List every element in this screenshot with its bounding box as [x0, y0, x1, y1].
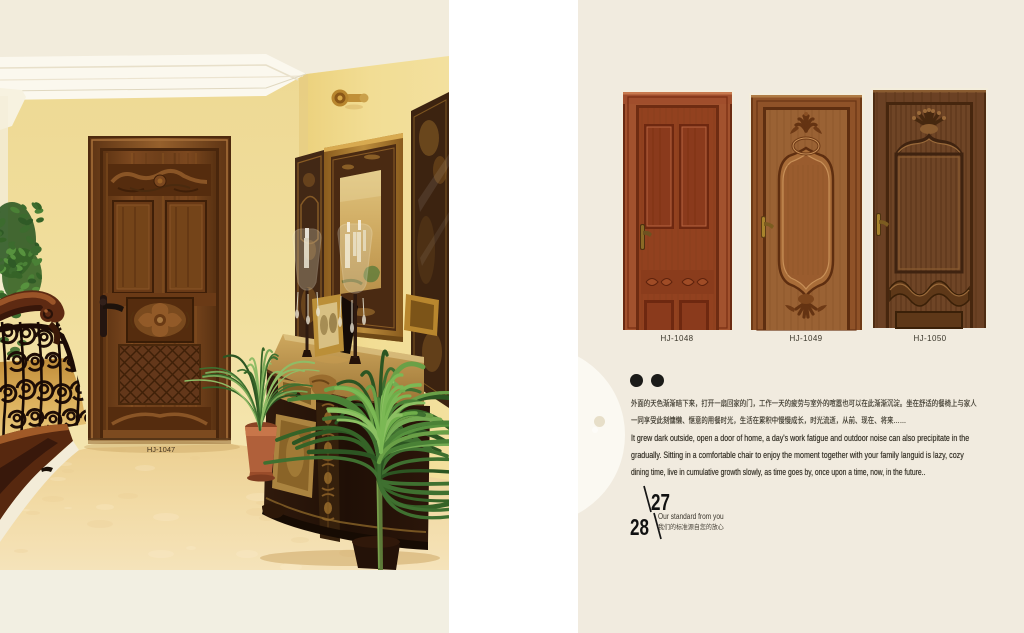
svg-text:HJ-1047: HJ-1047	[147, 445, 175, 454]
